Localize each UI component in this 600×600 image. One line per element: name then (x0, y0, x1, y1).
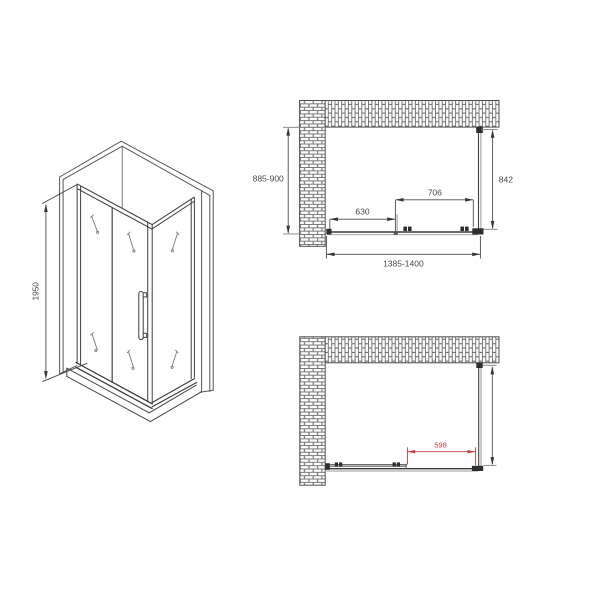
svg-text:1385-1400: 1385-1400 (383, 259, 424, 269)
svg-text:885-900: 885-900 (253, 174, 284, 184)
svg-text:706: 706 (428, 187, 442, 197)
svg-text:630: 630 (355, 207, 369, 217)
svg-text:842: 842 (499, 174, 513, 184)
svg-text:598: 598 (434, 441, 447, 450)
svg-text:1950: 1950 (31, 282, 41, 301)
